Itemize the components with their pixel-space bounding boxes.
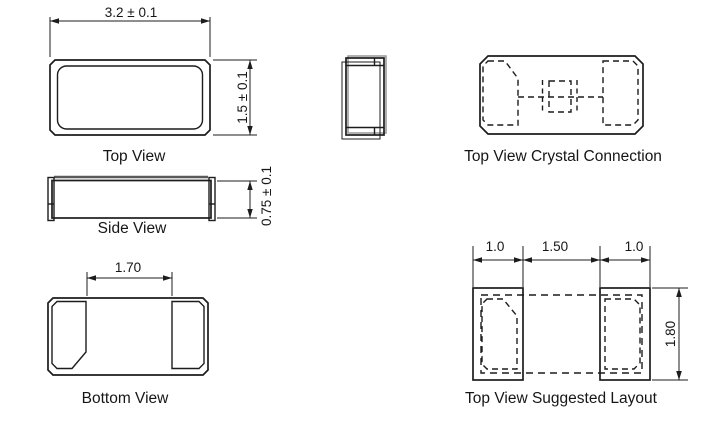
- right-pad-dashed-outline: [603, 61, 638, 125]
- arrow-down-icon: [247, 126, 252, 135]
- arrow-left-icon: [50, 18, 59, 23]
- package-dashed-outline: [481, 295, 642, 373]
- bottom-view-gap-dimension: 1.70: [87, 260, 172, 296]
- arrow-right-icon: [591, 257, 600, 263]
- package-outline: [50, 60, 210, 135]
- arrow-down-icon: [247, 209, 252, 218]
- suggested-layout-view: 1.0 1.50 1.0 1.80: [465, 239, 688, 407]
- layout-height-dimension: 1.80: [652, 288, 688, 380]
- bottom-view: 1.70 Bottom View: [48, 260, 208, 407]
- layout-left-pad-dim-text: 1.0: [486, 239, 505, 254]
- top-view-height-dim-text: 1.5 ± 0.1: [235, 71, 250, 123]
- crystal-connection-view: Top View Crystal Connection: [464, 56, 662, 165]
- top-view: 3.2 ± 0.1 1.5 ± 0.1 Top View: [50, 5, 257, 165]
- side-view-label: Side View: [98, 220, 167, 237]
- layout-height-dim-text: 1.80: [663, 321, 678, 347]
- top-view-width-dimension: 3.2 ± 0.1: [50, 5, 210, 57]
- package-body: [346, 58, 384, 135]
- right-terminal-cap: [209, 178, 215, 221]
- arrow-right-icon: [163, 275, 172, 280]
- top-view-height-dimension: 1.5 ± 0.1: [213, 60, 257, 135]
- top-view-width-dim-text: 3.2 ± 0.1: [105, 5, 157, 20]
- side-view: 0.75 ± 0.1 Side View: [48, 166, 274, 237]
- arrow-left-icon: [523, 257, 532, 263]
- bottom-view-label: Bottom View: [82, 390, 170, 407]
- arrow-up-icon: [247, 60, 252, 69]
- left-terminal-cap: [48, 178, 54, 221]
- package-outline: [48, 298, 208, 375]
- package-lid-outline: [58, 66, 203, 129]
- right-pad-outline: [172, 302, 204, 369]
- top-view-label: Top View: [103, 148, 166, 165]
- arrow-left-icon: [87, 275, 96, 280]
- arrow-right-icon: [514, 257, 523, 263]
- crystal-connection-label: Top View Crystal Connection: [464, 148, 662, 165]
- end-view: [342, 56, 386, 139]
- arrow-left-icon: [600, 257, 609, 263]
- package-outline: [480, 56, 643, 134]
- left-pad-dashed-outline: [483, 61, 518, 125]
- layout-top-dimensions: 1.0 1.50 1.0: [473, 239, 650, 287]
- right-pad-dashed-outline: [605, 299, 640, 369]
- arrow-down-icon: [676, 371, 682, 380]
- left-pad-outline: [52, 302, 86, 369]
- suggested-layout-label: Top View Suggested Layout: [465, 390, 658, 407]
- bottom-view-gap-dim-text: 1.70: [115, 260, 141, 275]
- side-view-height-dim-text: 0.75 ± 0.1: [259, 166, 274, 226]
- technical-drawing-page: 3.2 ± 0.1 1.5 ± 0.1 Top View: [0, 0, 713, 421]
- arrow-up-icon: [247, 181, 252, 190]
- arrow-up-icon: [676, 288, 682, 297]
- side-view-height-dimension: 0.75 ± 0.1: [217, 166, 274, 226]
- arrow-right-icon: [201, 18, 210, 23]
- arrow-left-icon: [473, 257, 482, 263]
- crystal-package-drawing: 3.2 ± 0.1 1.5 ± 0.1 Top View: [0, 0, 713, 421]
- package-body: [52, 181, 211, 219]
- layout-right-pad-dim-text: 1.0: [625, 239, 644, 254]
- left-pad-dashed-outline: [482, 299, 517, 369]
- arrow-right-icon: [641, 257, 650, 263]
- layout-gap-dim-text: 1.50: [542, 239, 568, 254]
